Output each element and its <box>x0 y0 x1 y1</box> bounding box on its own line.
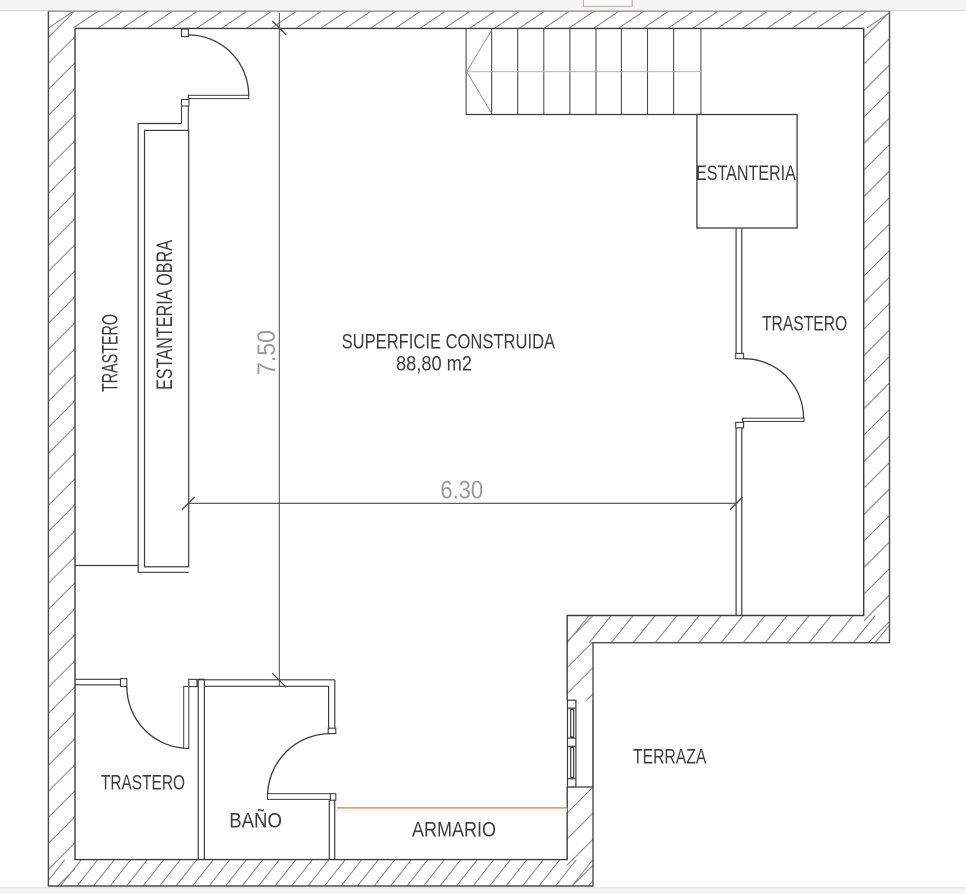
svg-text:TRASTERO: TRASTERO <box>101 771 185 794</box>
svg-text:ARMARIO: ARMARIO <box>412 819 496 842</box>
svg-text:SUPERFICIE CONSTRUIDA: SUPERFICIE CONSTRUIDA <box>342 331 555 354</box>
svg-text:6.30: 6.30 <box>440 477 483 505</box>
svg-text:ESTANTERIA OBRA: ESTANTERIA OBRA <box>152 240 177 390</box>
svg-text:TERRAZA: TERRAZA <box>633 746 706 769</box>
svg-text:TRASTERO: TRASTERO <box>98 314 123 392</box>
svg-text:TRASTERO: TRASTERO <box>762 313 847 336</box>
svg-text:7.50: 7.50 <box>253 330 281 375</box>
svg-text:BAÑO: BAÑO <box>229 809 282 833</box>
svg-text:ESTANTERIA: ESTANTERIA <box>696 162 796 185</box>
svg-text:88,80 m2: 88,80 m2 <box>396 353 472 376</box>
